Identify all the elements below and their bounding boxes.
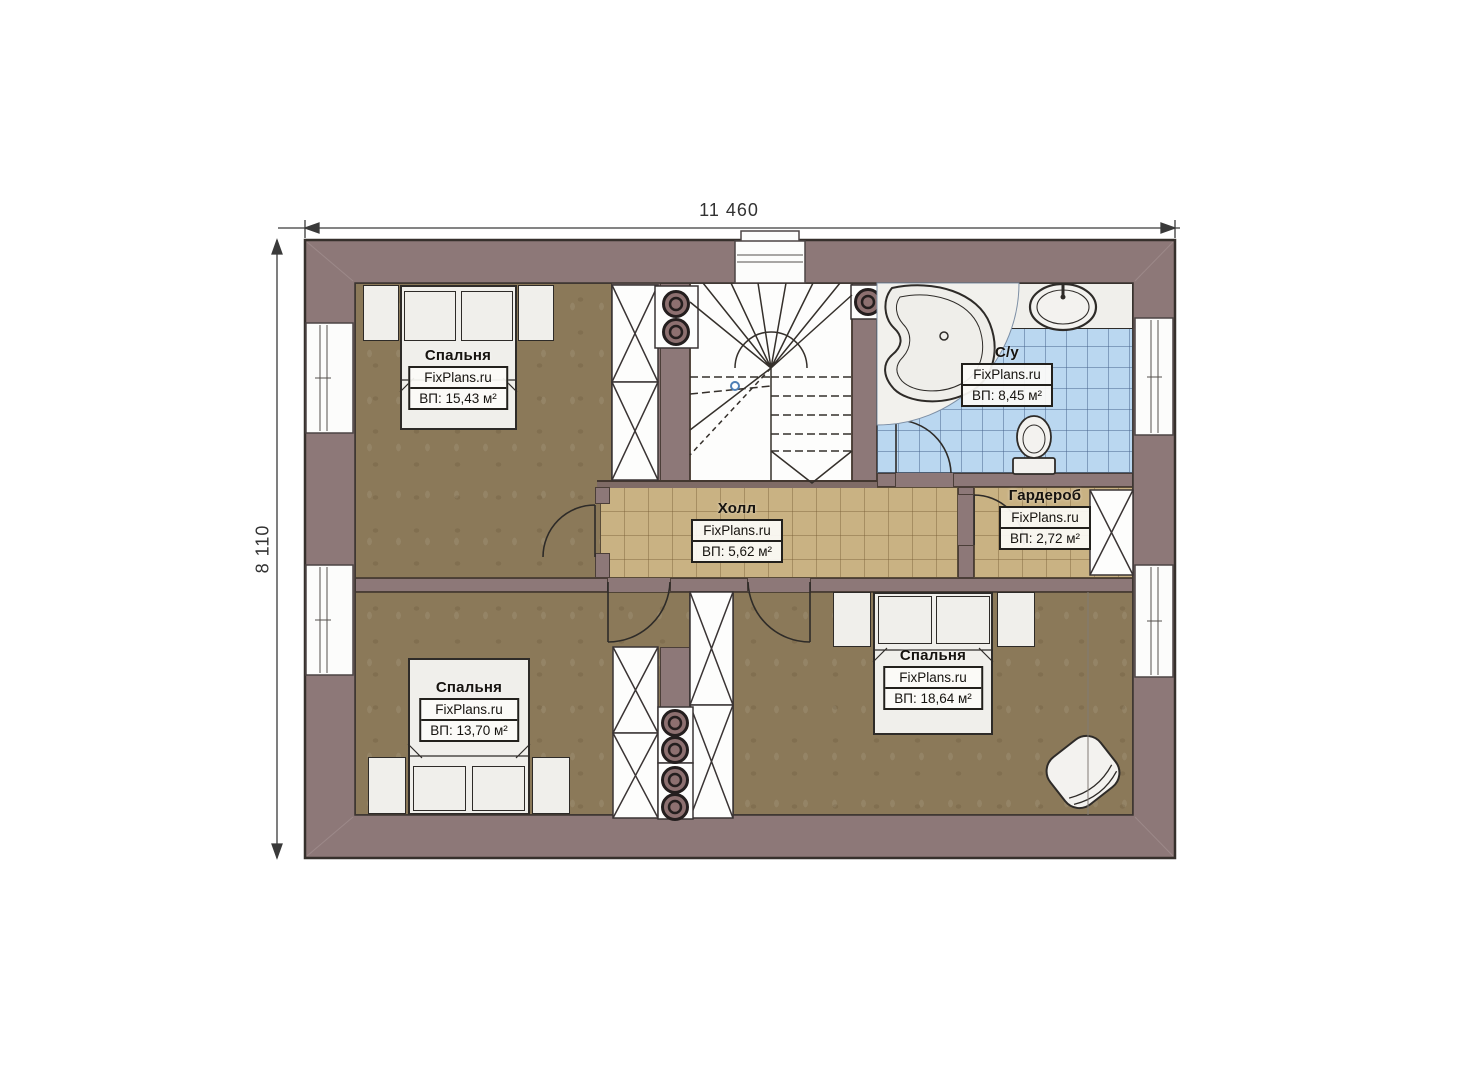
room-label-bedroom-top-left: Спальня FixPlans.ru ВП: 15,43 м² [408,347,508,410]
room-name: С/у [961,344,1053,361]
wall-stub-bottom-center [660,647,690,708]
pillow [878,596,932,644]
wall-bathroom-bottom-right [953,473,1133,487]
brand-text: FixPlans.ru [421,700,517,719]
room-name: Спальня [883,647,983,664]
wall-middle-center [670,578,748,592]
pillow [472,766,525,811]
nightstand [833,592,871,647]
area-text: ВП: 18,64 м² [885,687,981,708]
room-name: Спальня [408,347,508,364]
pillow [461,291,513,341]
pillow [413,766,466,811]
dimension-height-label: 8 110 [253,525,274,574]
area-text: ВП: 13,70 м² [421,719,517,740]
wall-left-of-stairs [660,283,690,487]
room-label-bedroom-bottom-right: Спальня FixPlans.ru ВП: 18,64 м² [883,647,983,710]
nightstand [363,285,399,341]
dimension-width-label: 11 460 [699,200,759,221]
room-info-box: FixPlans.ru ВП: 13,70 м² [419,698,519,742]
room-info-box: FixPlans.ru ВП: 5,62 м² [691,519,783,563]
wall-right-of-stairs [852,283,877,487]
floor-plan-page: Спальня FixPlans.ru ВП: 15,43 м² С/у Fix… [0,0,1473,1080]
area-text: ВП: 8,45 м² [963,384,1051,405]
room-label-bedroom-bottom-left: Спальня FixPlans.ru ВП: 13,70 м² [419,679,519,742]
pillow [404,291,456,341]
brand-text: FixPlans.ru [885,668,981,687]
wall-hall-left-stub-bottom [595,553,610,578]
wall-bathroom-bottom-left [877,473,896,487]
room-label-bathroom: С/у FixPlans.ru ВП: 8,45 м² [961,344,1053,407]
nightstand [997,592,1035,647]
room-name: Спальня [419,679,519,696]
wall-middle-right [810,578,1133,592]
room-info-box: FixPlans.ru ВП: 18,64 м² [883,666,983,710]
room-name: Гардероб [999,487,1091,504]
room-label-wardrobe: Гардероб FixPlans.ru ВП: 2,72 м² [999,487,1091,550]
room-info-box: FixPlans.ru ВП: 15,43 м² [408,366,508,410]
wall-hall-left-stub-top [595,487,610,504]
nightstand [532,757,570,814]
nightstand [368,757,406,814]
wall-wardrobe-left-stub-top [958,487,974,495]
room-label-hall: Холл FixPlans.ru ВП: 5,62 м² [691,500,783,563]
brand-text: FixPlans.ru [410,368,506,387]
wall-wardrobe-left-stub-bottom [958,545,974,578]
wall-hall-top [597,480,877,488]
brand-text: FixPlans.ru [963,365,1051,384]
room-name: Холл [691,500,783,517]
room-info-box: FixPlans.ru ВП: 2,72 м² [999,506,1091,550]
wall-middle-left [355,578,608,592]
brand-text: FixPlans.ru [1001,508,1089,527]
bathroom-counter [995,283,1133,329]
nightstand [518,285,554,341]
area-text: ВП: 5,62 м² [693,540,781,561]
brand-text: FixPlans.ru [693,521,781,540]
area-text: ВП: 15,43 м² [410,387,506,408]
room-info-box: FixPlans.ru ВП: 8,45 м² [961,363,1053,407]
area-text: ВП: 2,72 м² [1001,527,1089,548]
stairwell [690,283,852,481]
pillow [936,596,990,644]
